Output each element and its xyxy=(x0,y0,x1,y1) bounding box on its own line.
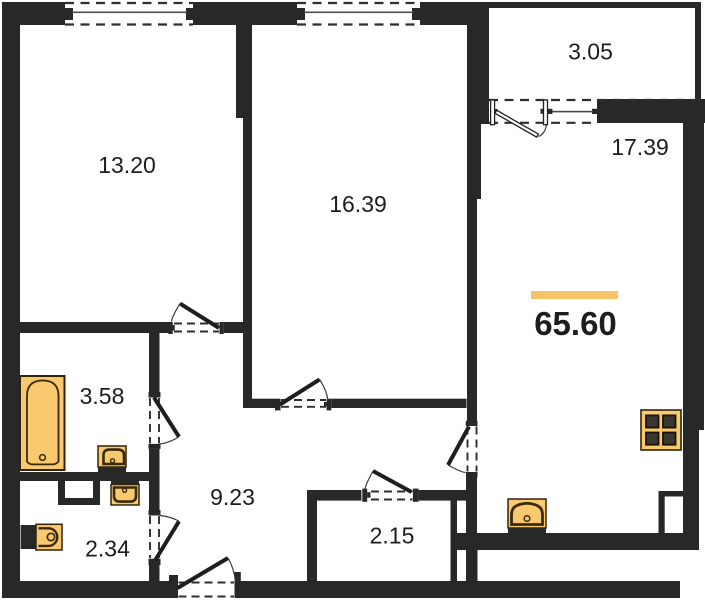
svg-text:65.60: 65.60 xyxy=(534,305,617,342)
svg-text:3.58: 3.58 xyxy=(80,383,125,409)
svg-text:2.15: 2.15 xyxy=(370,523,415,549)
svg-text:3.05: 3.05 xyxy=(568,39,613,65)
svg-text:17.39: 17.39 xyxy=(611,134,669,160)
svg-text:13.20: 13.20 xyxy=(98,152,156,178)
svg-text:16.39: 16.39 xyxy=(329,191,387,217)
svg-text:9.23: 9.23 xyxy=(210,484,255,510)
svg-text:2.34: 2.34 xyxy=(85,536,130,562)
